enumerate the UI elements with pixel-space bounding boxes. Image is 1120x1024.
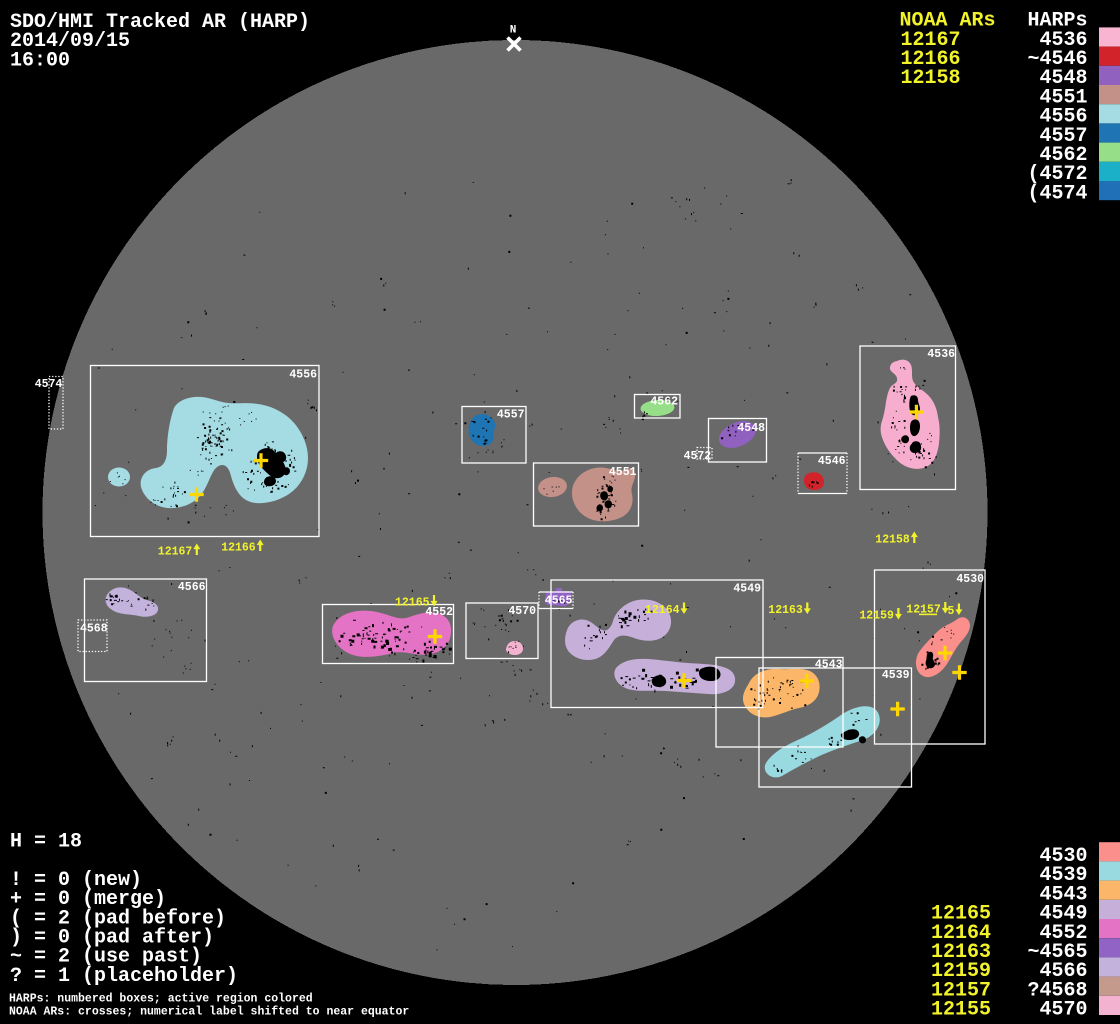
svg-text:4530: 4530 [956,573,984,586]
svg-text:12163: 12163 [768,604,803,617]
svg-text:4568: 4568 [80,622,108,635]
svg-text:4570: 4570 [1039,999,1087,1022]
svg-text:4548: 4548 [737,422,765,435]
svg-text:4574: 4574 [35,378,63,391]
svg-text:4562: 4562 [650,396,678,409]
svg-text:4549: 4549 [733,582,761,595]
svg-text:(4574: (4574 [1027,182,1087,205]
svg-text:4557: 4557 [497,408,525,421]
svg-text:16:00: 16:00 [10,49,70,72]
svg-text:4539: 4539 [882,669,910,682]
svg-text:4565: 4565 [545,595,573,608]
svg-text:4552: 4552 [425,606,453,619]
svg-text:H = 18: H = 18 [10,831,82,854]
svg-text:4566: 4566 [178,581,206,594]
svg-text:12155: 12155 [931,999,991,1022]
svg-text:? = 1 (placeholder): ? = 1 (placeholder) [10,965,238,988]
svg-text:12159: 12159 [859,610,894,623]
svg-text:4572: 4572 [684,450,712,463]
svg-text:4543: 4543 [815,659,843,672]
svg-text:12165: 12165 [395,597,430,610]
svg-text:HARPs: numbered boxes; active: HARPs: numbered boxes; active region col… [9,993,313,1006]
svg-text:12167: 12167 [158,546,193,559]
svg-text:NOAA ARs: crosses; numerical l: NOAA ARs: crosses; numerical label shift… [9,1006,409,1019]
svg-text:4556: 4556 [289,369,317,382]
svg-text:5: 5 [948,605,955,618]
svg-text:4551: 4551 [609,466,637,479]
svg-text:12158: 12158 [875,534,910,547]
svg-text:12158: 12158 [900,67,960,90]
svg-text:12166: 12166 [221,542,256,555]
svg-text:12164: 12164 [645,604,680,617]
svg-text:4570: 4570 [508,605,536,618]
svg-text:4536: 4536 [927,348,955,361]
svg-text:4546: 4546 [818,455,846,468]
svg-text:N: N [510,25,517,37]
